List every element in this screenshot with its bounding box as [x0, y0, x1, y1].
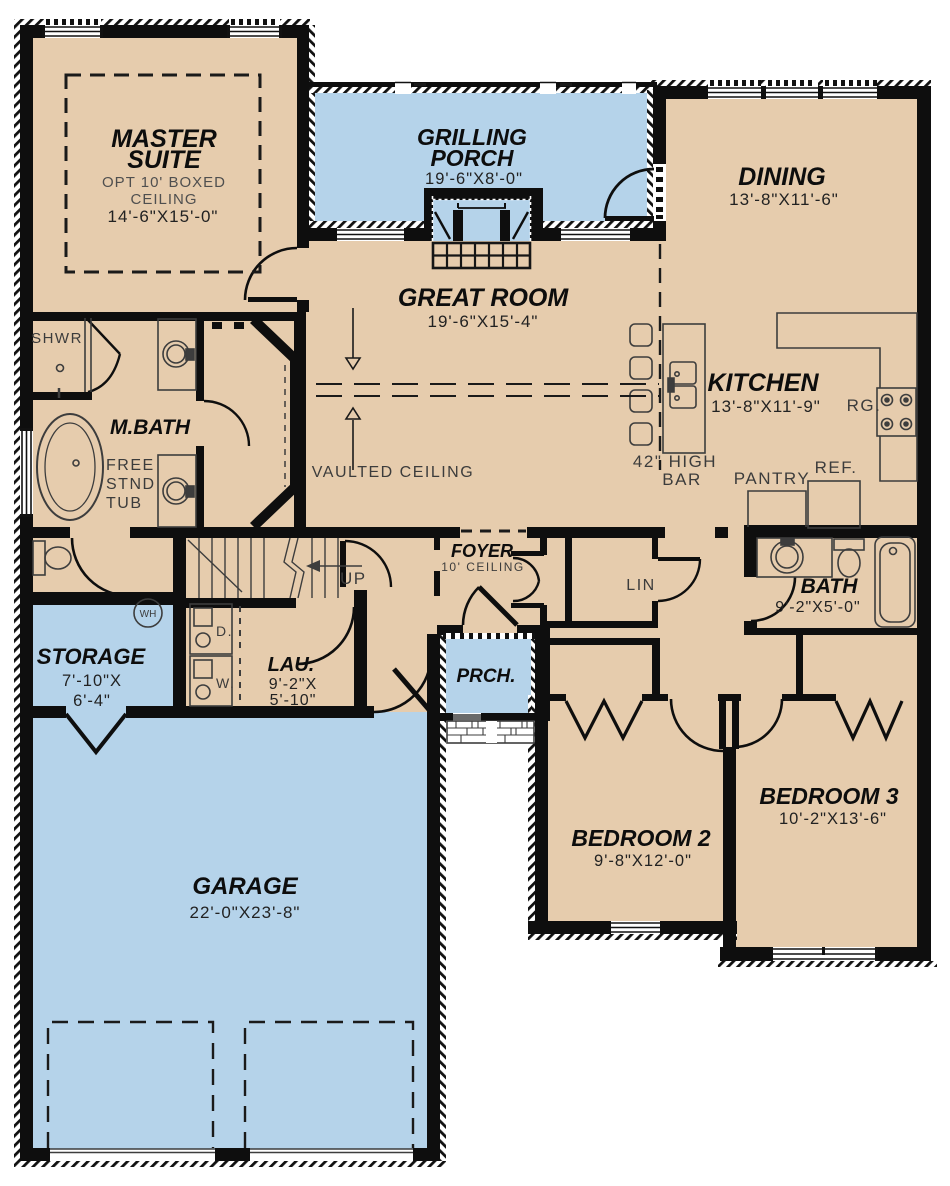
svg-text:BAR: BAR — [662, 470, 701, 489]
svg-text:BEDROOM 3: BEDROOM 3 — [759, 783, 899, 809]
svg-text:OPT 10' BOXED: OPT 10' BOXED — [102, 174, 226, 191]
svg-text:VAULTED CEILING: VAULTED CEILING — [312, 464, 474, 481]
svg-text:10'-2"X13'-6": 10'-2"X13'-6" — [779, 810, 887, 828]
svg-text:LAU.: LAU. — [268, 654, 315, 676]
svg-text:7'-10"X: 7'-10"X — [62, 672, 122, 690]
svg-text:13'-8"X11'-6": 13'-8"X11'-6" — [729, 190, 839, 209]
svg-text:19'-6"X15'-4": 19'-6"X15'-4" — [428, 312, 539, 331]
svg-text:9'-2"X5'-0": 9'-2"X5'-0" — [775, 599, 860, 616]
svg-text:BATH: BATH — [801, 575, 859, 598]
svg-text:19'-6"X8'-0": 19'-6"X8'-0" — [425, 170, 523, 188]
svg-text:DINING: DINING — [738, 163, 826, 191]
svg-text:9'-2"X: 9'-2"X — [269, 676, 318, 693]
svg-text:W.: W. — [216, 675, 235, 691]
svg-text:PRCH.: PRCH. — [456, 666, 515, 687]
svg-text:M.BATH: M.BATH — [110, 416, 191, 439]
svg-text:RG.: RG. — [847, 396, 882, 415]
svg-text:9'-8"X12'-0": 9'-8"X12'-0" — [594, 852, 692, 870]
svg-text:REF.: REF. — [815, 458, 858, 477]
svg-text:13'-8"X11'-9": 13'-8"X11'-9" — [711, 397, 821, 416]
svg-text:STORAGE: STORAGE — [37, 644, 147, 669]
svg-text:D.: D. — [216, 623, 233, 639]
svg-text:SHWR: SHWR — [31, 330, 83, 347]
svg-text:STND: STND — [106, 476, 156, 493]
svg-text:BEDROOM 2: BEDROOM 2 — [571, 825, 711, 851]
svg-text:CEILING: CEILING — [130, 191, 197, 208]
svg-text:5'-10": 5'-10" — [270, 692, 317, 709]
svg-text:GREAT ROOM: GREAT ROOM — [398, 284, 570, 312]
svg-text:SUITE: SUITE — [127, 146, 202, 174]
svg-text:6'-4": 6'-4" — [73, 692, 111, 710]
svg-text:GARAGE: GARAGE — [192, 873, 298, 900]
svg-text:UP: UP — [340, 569, 367, 588]
svg-text:22'-0"X23'-8": 22'-0"X23'-8" — [190, 903, 301, 922]
svg-text:LIN: LIN — [626, 577, 655, 594]
svg-text:PANTRY: PANTRY — [734, 469, 810, 488]
svg-text:PORCH: PORCH — [430, 145, 513, 171]
svg-text:14'-6"X15'-0": 14'-6"X15'-0" — [108, 207, 219, 226]
svg-text:KITCHEN: KITCHEN — [707, 369, 819, 397]
svg-text:FOYER: FOYER — [451, 541, 513, 561]
svg-text:FREE: FREE — [106, 457, 155, 474]
svg-text:42" HIGH: 42" HIGH — [633, 452, 717, 471]
svg-text:TUB: TUB — [106, 495, 143, 512]
svg-text:10' CEILING: 10' CEILING — [441, 560, 524, 574]
svg-text:WH: WH — [140, 609, 157, 620]
